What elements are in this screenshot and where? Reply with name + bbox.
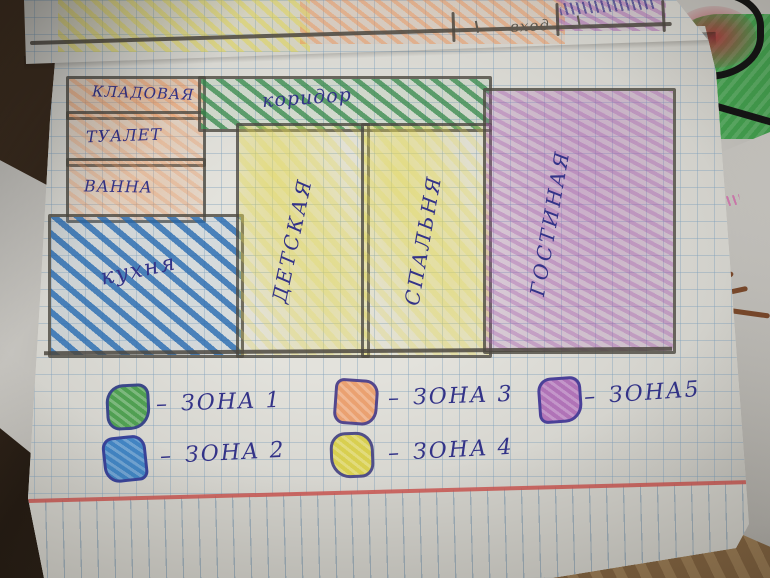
legend-label: ЗОНА 2 (184, 438, 286, 468)
zone3-color-swatch (332, 378, 379, 427)
legend-dash: – (583, 384, 598, 410)
legend-dash: – (387, 441, 401, 467)
legend-label: ЗОНА 4 (412, 435, 514, 465)
notebook-page: КЛАДОВАЯ ТУАЛЕТ ВАННА кухня коридор ДЕТС… (0, 0, 770, 578)
room-label-bath: ВАННА (84, 176, 153, 196)
legend-dash: – (388, 386, 402, 411)
zone2-color-swatch (101, 434, 150, 484)
legend-entry-zone5: –ЗОНА5 (583, 377, 701, 410)
zone1-color-swatch (105, 383, 151, 431)
photo-of-notebook: КЛАДОВАЯ ТУАЛЕТ ВАННА кухня коридор ДЕТС… (0, 0, 770, 578)
room-living-room (483, 88, 676, 354)
legend-entry-zone2: –ЗОНА 2 (159, 438, 286, 470)
legend-entry-zone1: –ЗОНА 1 (156, 388, 282, 417)
zone2-fill (51, 217, 241, 355)
legend-entry-zone3: –ЗОНА 3 (388, 382, 514, 411)
legend-entry-zone4: –ЗОНА 4 (387, 435, 514, 467)
legend-label: ЗОНА 3 (413, 382, 514, 410)
room-label-storage: КЛАДОВАЯ (92, 82, 195, 104)
legend-label: ЗОНА 1 (181, 388, 282, 416)
room-label-toilet: ТУАЛЕТ (86, 125, 163, 147)
prev-plan-yellow-shading (58, 0, 310, 52)
legend-dash: – (156, 392, 170, 417)
legend-dash: – (159, 444, 173, 470)
zone4-color-swatch (329, 431, 375, 479)
zone5-fill (486, 91, 673, 351)
zone5-color-swatch (536, 376, 583, 425)
room-kitchen (48, 214, 244, 358)
legend-label: ЗОНА5 (608, 377, 701, 408)
